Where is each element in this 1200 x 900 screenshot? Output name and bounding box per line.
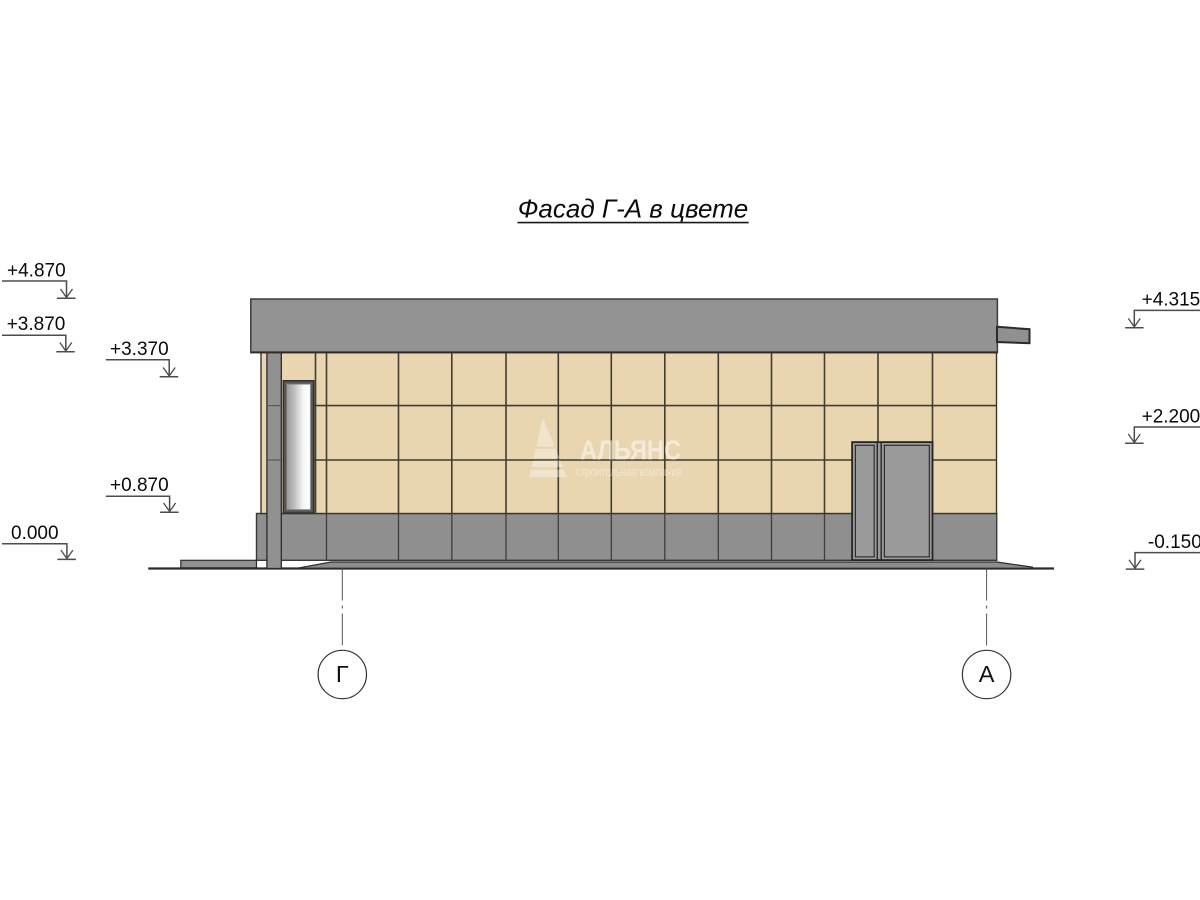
- svg-text:АЛЬЯНС: АЛЬЯНС: [580, 435, 681, 466]
- svg-text:А: А: [979, 661, 995, 687]
- svg-text:+2.200: +2.200: [1142, 407, 1200, 428]
- svg-text:+4.870: +4.870: [7, 261, 66, 282]
- svg-text:+0.870: +0.870: [110, 475, 169, 496]
- svg-text:Фасад Г-А в цвете: Фасад Г-А в цвете: [518, 194, 749, 224]
- svg-text:строительная компания: строительная компания: [576, 465, 682, 479]
- svg-text:+3.870: +3.870: [7, 314, 66, 335]
- svg-text:-0.150: -0.150: [1148, 532, 1200, 553]
- svg-text:0.000: 0.000: [11, 523, 59, 544]
- svg-text:Г: Г: [336, 661, 349, 687]
- svg-text:+4.315: +4.315: [1142, 290, 1200, 311]
- svg-text:+3.370: +3.370: [110, 339, 169, 360]
